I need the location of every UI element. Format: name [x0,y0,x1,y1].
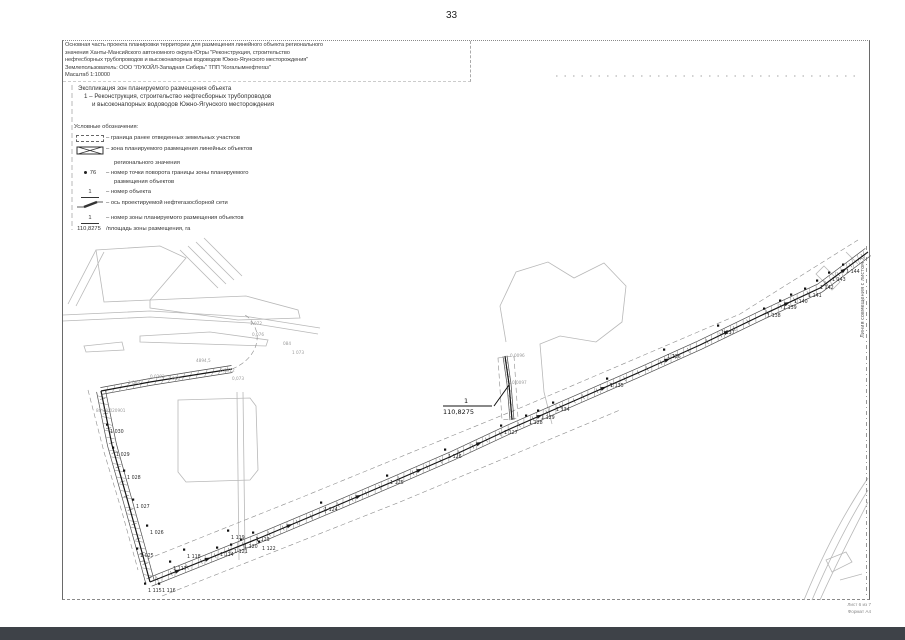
zone-leader-line [494,385,509,406]
turn-point-label: 1 117 [173,566,187,572]
legend-item-object-number: 1 – номер объекта [74,189,252,198]
object-number-symbol: 1 [74,189,106,198]
point-dot-icon [84,171,87,174]
turn-point-label: 1 141 [808,293,822,299]
legend-label: – граница ранее отведенных земельных уча… [106,135,240,143]
turn-point-label: 1 122 [262,546,276,552]
title-line: нефтесборных трубопроводов и высоконапор… [65,57,467,65]
footer-notes: Лист 6 из 7 Формат А4 [847,602,871,615]
explication-block: Экспликация зон планируемого размещения … [78,85,274,110]
cadastral-label: 1 066 [168,376,180,381]
legend-label-cont: размещения объектов [74,179,252,187]
turn-point-dot [132,499,134,501]
turn-point-label: 1 129 [541,415,555,421]
legend-label: – номер точки поворота границы зоны план… [106,170,248,178]
explication-item: 1 – Реконструкция, строительство нефтесб… [78,93,274,101]
zone-area-label: 110,8275 [443,408,474,416]
turn-point-dot [444,449,446,451]
turn-point-dot [112,447,114,449]
pipeline-axis [101,369,232,391]
turn-point-dot [816,280,818,282]
legend-item-allotted-boundary: – граница ранее отведенных земельных уча… [74,135,252,144]
corridor-edge [100,366,231,388]
turn-point-dot [717,325,719,327]
cadastral-label: 084 [283,341,291,346]
cadastral-label: 0,0912 [220,368,235,373]
turn-point-dot [144,583,146,585]
legend-label: – ось проектируемой нефтегазосборной сет… [106,200,228,208]
turn-point-dot [230,544,232,546]
title-line: Масштаб 1:10000 [65,72,467,80]
viewer-bottom-bar [0,627,905,640]
explication-item-cont: и высоконапорных водоводов Южно-Ягунског… [78,101,274,109]
turn-point-dot [386,475,388,477]
cadastral-label: 0,073 [232,376,244,381]
turn-point-dot [240,539,242,541]
corridor-edge [152,256,871,587]
turn-point-dot [183,549,185,551]
corridor-edge [105,390,154,581]
turn-point-label: 1 125 [390,480,404,486]
cadastral-label: 1 073 [292,350,304,355]
turn-point-label: 1 126 [448,454,462,460]
turn-point-symbol: 76 [74,170,106,178]
legend-item-zone-number: 1 – номер зоны планируемого размещения о… [74,215,252,224]
turn-point-label: 1 135 [610,383,624,389]
turn-point-label: 1 116 [162,588,176,594]
turn-point-dot [537,410,539,412]
turn-point-label: 1 127 [504,430,518,436]
sheet-format: Формат А4 [847,609,871,616]
legend-title: Условные обозначения: [74,124,252,132]
zone-number-symbol: 1 [74,215,106,224]
turn-point-label: 1 115 [148,588,162,594]
turn-point-label: 1 118 [187,554,201,560]
turn-point-label: 1 121 [234,549,248,555]
topo-base [63,238,868,600]
title-line: Основная часть проекта планировки террит… [65,42,467,50]
turn-point-label: 1 138 [767,313,781,319]
legend-block: Условные обозначения: – граница ранее от… [74,124,252,236]
turn-point-dot [779,300,781,302]
sheet-counter: Лист 6 из 7 [847,602,871,609]
legend-item-zone-area: 110,8275 /площадь зоны размещения, га [74,226,252,234]
explication-title: Экспликация зон планируемого размещения … [78,85,274,93]
turn-point-label: 1 026 [150,530,164,536]
zone-hatch-symbol [74,146,106,159]
cadastral-label: 0,0096 [510,353,525,358]
cadastral-label: 1 068 [128,380,140,385]
document-page: 33 [0,0,905,640]
turn-point-dot [136,548,138,550]
turn-point-dot [842,264,844,266]
turn-point-label: 1 025 [140,553,154,559]
turn-point-dot [216,547,218,549]
legend-item-pipeline-axis: – ось проектируемой нефтегазосборной сет… [74,200,252,213]
title-line: Землепользователь: ООО "ЛУКОЙЛ-Западная … [65,65,467,73]
turn-point-dot [227,530,229,532]
turn-point-label: 1 139 [783,305,797,311]
legend-item-turn-point: 76 – номер точки поворота границы зоны п… [74,170,252,178]
legend-label: – номер объекта [106,189,151,197]
legend-label: /площадь зоны размещения, га [106,226,190,234]
turn-point-label: 1 142 [820,285,834,291]
turn-point-dot [804,288,806,290]
dashed-boundary-symbol [74,135,106,144]
turn-point-dot [500,425,502,427]
turn-point-dot [146,525,148,527]
turn-point-label: 1 114 [220,552,234,558]
turn-point-label: 1 140 [794,299,808,305]
cadastral-label: 86:10:020901 [96,408,126,413]
match-line-label: Линия совмещения с листом 7 [860,257,866,338]
turn-point-label: 1 029 [116,452,130,458]
turn-point-dot [606,378,608,380]
turn-point-dot [158,583,160,585]
turn-point-dot [663,349,665,351]
turn-point-dot [106,424,108,426]
zone-number-label: 1 [464,397,468,405]
turn-point-dot [525,415,527,417]
turn-point-label: 1 143 [832,277,846,283]
title-block: Основная часть проекта планировки террит… [63,41,471,82]
turn-point-label: 1 030 [110,429,124,435]
turn-point-label: 1 124 [324,507,338,513]
turn-point-label: 1 144 [846,269,860,275]
turn-point-dot [320,502,322,504]
cadastral-label: 0,0292 [150,374,165,379]
turn-point-label: 1 136 [667,354,681,360]
legend-label: – зона планируемого размещения линейных … [106,146,252,154]
turn-point-dot [828,272,830,274]
turn-point-label: 1 028 [127,475,141,481]
pipeline-axis-symbol [74,200,106,213]
turn-point-dot [552,402,554,404]
cadastral-label: 4894,5 [196,358,211,363]
cadastral-label: 0,0097 [512,380,527,385]
legend-label: – номер зоны планируемого размещения объ… [106,215,244,223]
title-line: значения Ханты-Мансийского автономного о… [65,50,467,58]
cadastral-label: 0,076 [252,332,264,337]
turn-point-label: 1 027 [136,504,150,510]
zone-area-symbol: 110,8275 [74,226,106,234]
legend-label-cont: регионального значения [74,160,252,168]
turn-point-label: 1 137 [721,330,735,336]
legend-item-placement-zone: – зона планируемого размещения линейных … [74,146,252,159]
turn-point-label: 1 119 [231,535,245,541]
turn-point-dot [123,470,125,472]
turn-point-dot [790,294,792,296]
turn-point-dot [252,532,254,534]
turn-point-label: 1 134 [556,407,570,413]
turn-point-dot [169,561,171,563]
cadastral-label: 1 072 [250,321,262,326]
turn-point-label: 1 123 [256,537,270,543]
turn-point-dot [763,308,765,310]
